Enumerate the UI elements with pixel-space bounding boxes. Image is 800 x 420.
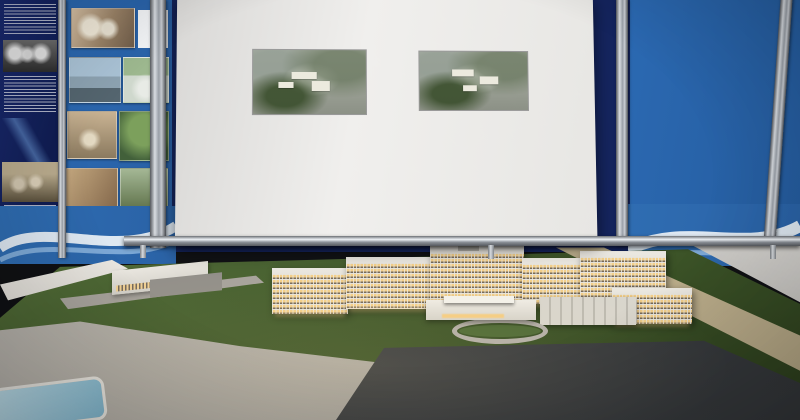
rail-bracket (770, 245, 776, 259)
entrance-canopy (444, 296, 514, 303)
render-left-caption (252, 43, 367, 44)
scene (0, 0, 800, 420)
hospital-scale-model (0, 244, 800, 420)
banner-photo-bw (3, 40, 57, 72)
photo-doctors (71, 8, 135, 48)
render-right-caption (418, 45, 528, 46)
chrome-rail (124, 236, 800, 246)
banner-swirl (2, 118, 58, 162)
render-right (418, 51, 529, 111)
project-passport-poster (175, 0, 598, 245)
entrance-driveway (452, 318, 548, 344)
chrome-pole-banner-edge (58, 0, 66, 258)
render-left (252, 49, 367, 115)
entrance-podium (426, 300, 536, 320)
technical-halls (540, 297, 636, 325)
hospital-wing-left (272, 268, 348, 314)
banner-text-block (4, 4, 56, 36)
photo-group-outdoor (69, 57, 121, 103)
banner-text-block (4, 76, 56, 114)
hospital-wing-mid (346, 257, 432, 309)
chrome-pole-left (150, 0, 166, 248)
rail-bracket (488, 245, 494, 259)
additional-block (233, 171, 580, 174)
photo-seated (67, 111, 117, 159)
rail-bracket (140, 245, 146, 258)
banner-photo-group (2, 162, 58, 202)
poster-right-fields (469, 10, 587, 15)
chrome-pole-right (616, 0, 628, 246)
poster-left-fields (236, 6, 445, 8)
